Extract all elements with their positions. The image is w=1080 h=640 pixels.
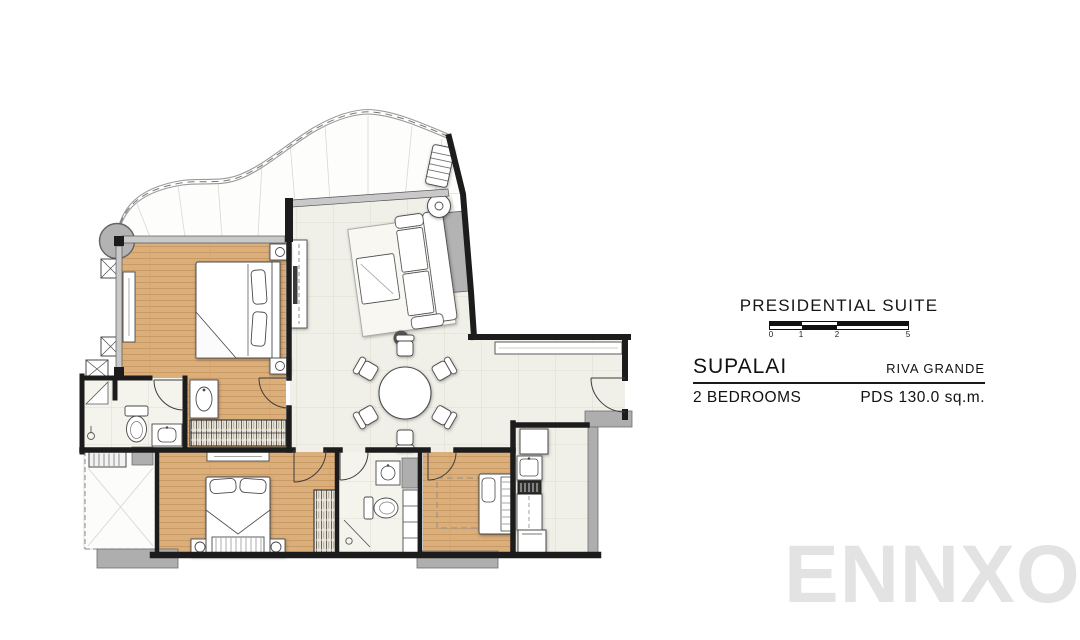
scale-labels: 0 1 2 5 <box>769 330 909 340</box>
info-panel: PRESIDENTIAL SUITE 0 1 2 5 SUPALAI RIVA … <box>693 296 985 407</box>
unit-type: 2 BEDROOMS <box>693 389 801 407</box>
bath2-shelves <box>403 490 418 554</box>
floor-plan-page: PRESIDENTIAL SUITE 0 1 2 5 SUPALAI RIVA … <box>0 0 1080 640</box>
scale-label-2: 2 <box>835 330 839 339</box>
bedroom2-wardrobe <box>314 490 336 556</box>
master-dresser <box>123 272 135 342</box>
side-table <box>428 195 451 218</box>
bedroom3-bed <box>479 474 513 534</box>
toilet-1 <box>125 406 148 442</box>
project-name: RIVA GRANDE <box>886 361 985 376</box>
bath1-sink <box>152 424 182 446</box>
scale-bar: 0 1 2 5 <box>769 321 909 341</box>
bedroom2-dresser <box>207 452 269 461</box>
scale-label-5: 5 <box>906 330 910 339</box>
stove <box>518 481 541 494</box>
scale-bar-graphic <box>769 321 909 330</box>
unit-area: PDS 130.0 sq.m. <box>860 389 985 407</box>
plan-title: PRESIDENTIAL SUITE <box>693 296 985 316</box>
oven <box>518 530 546 553</box>
entry-console <box>495 342 622 354</box>
ac-condenser-unit <box>89 452 126 467</box>
sofa-set <box>347 210 458 336</box>
scale-label-0: 0 <box>769 330 773 339</box>
brand-name: SUPALAI <box>693 355 787 379</box>
scale-label-1: 1 <box>799 330 803 339</box>
master-wardrobe <box>190 420 286 446</box>
tv-console <box>291 240 307 328</box>
vanity-basin <box>190 380 218 418</box>
kitchen-sink <box>517 456 542 480</box>
exterior-planter-boxes <box>86 259 120 378</box>
divider-rule <box>693 382 985 384</box>
master-bed <box>196 244 290 374</box>
dining-table <box>379 367 431 419</box>
toilet-2 <box>364 497 398 519</box>
fridge <box>520 429 548 454</box>
watermark: ENNXO <box>784 534 1080 616</box>
bath2-sink <box>376 461 400 485</box>
